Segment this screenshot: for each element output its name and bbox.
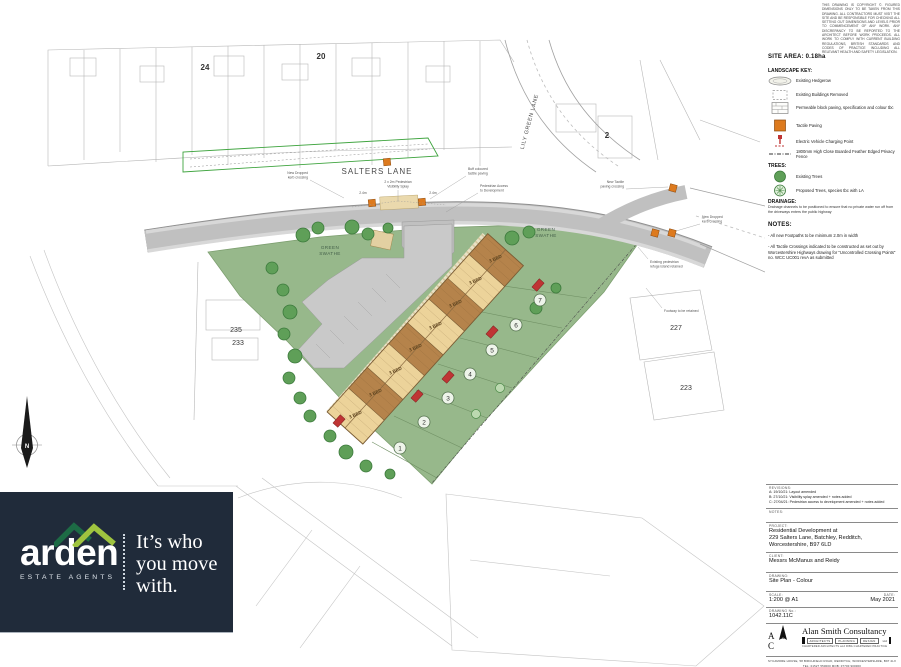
plot-number: 4 — [468, 372, 472, 379]
annotation: tactile paving — [468, 172, 488, 176]
stamp-bar — [802, 637, 805, 644]
plot-number: 7 — [538, 298, 542, 305]
client-section: CLIENT: Messrs McManus and Reidy — [766, 552, 898, 571]
firm-contact-block: SYCAMORE HOUSE, 58 BIRCHFIELD ROAD, REDD… — [766, 656, 898, 667]
discipline-label: ARCHITECTS — [807, 638, 834, 644]
house-number: 227 — [670, 325, 682, 332]
firm-suffix: Ltd — [883, 639, 887, 643]
drawing-title: Site Plan - Colour — [769, 578, 895, 585]
key-item-label: Existing Buildings Removed — [796, 92, 848, 97]
site-plan-page: 3 BED 3 BED 3 BED 3 BED 3 BED 3 BED 3 BE… — [0, 0, 901, 667]
annotation: New Dropped — [287, 171, 308, 175]
key-item-buildings-removed: Existing Buildings Removed — [768, 89, 899, 101]
site-area-label: SITE AREA: 0.18ha — [768, 54, 898, 60]
house-number: 24 — [201, 63, 210, 72]
arden-subtitle: ESTATE AGENTS — [20, 574, 120, 581]
annotation: New Dropped — [702, 215, 723, 219]
firm-phone: TEL: 01527 550000 MOB: 07700 900000 — [766, 664, 898, 667]
annotation: to Development — [480, 189, 504, 193]
plot-number: 2 — [422, 420, 426, 427]
annotation: kerb crossing — [702, 220, 722, 224]
key-item-existing-trees: Existing Trees — [768, 170, 899, 183]
consultancy-name: Alan Smith Consultancy — [802, 626, 896, 636]
tagline-line: with. — [136, 576, 217, 598]
tagline-line: you move — [136, 554, 217, 576]
date-value: May 2021 — [870, 597, 895, 604]
banner-divider — [123, 534, 125, 590]
discipline-label: PLANNING — [835, 638, 858, 644]
key-item-privacy-fence: 1800mm High Close Boarded Feather Edged … — [768, 149, 899, 160]
house-number: 233 — [232, 340, 244, 347]
hedgerow-icon — [768, 76, 792, 86]
arden-logo: arden ESTATE AGENTS — [20, 534, 120, 581]
notes-title: NOTES: — [768, 222, 898, 228]
annotation: 2.4m — [429, 191, 437, 195]
house-number: 223 — [680, 385, 692, 392]
key-item-label: Permeable block paving, specification an… — [796, 105, 894, 110]
drawing-no-section: DRAWING No.: 1042.11C — [766, 607, 898, 623]
note-item: - All Tactile Crossings indicated to be … — [768, 244, 898, 261]
removed-building-icon — [768, 89, 792, 101]
block-paving-icon — [768, 101, 792, 115]
neighbourhood-north — [48, 40, 514, 168]
key-item-permeable-paving: Permeable block paving, specification an… — [768, 101, 899, 115]
project-line: Worcestershire, B97 6LD — [769, 542, 895, 549]
revision-row: C: 27/04/21: Pedestrian access to develo… — [769, 500, 895, 505]
key-item-tactile-paving: Tactile Paving — [768, 119, 899, 132]
proposed-tree-icon — [768, 184, 792, 197]
plot-number: 3 — [446, 396, 450, 403]
plot-number: 5 — [490, 348, 494, 355]
annotation: 2 x 2m Pedestrian — [384, 180, 411, 184]
key-item-label: 1800mm High Close Boarded Feather Edged … — [796, 149, 899, 160]
key-item-proposed-trees: Proposed Trees, species tbc with LA — [768, 184, 899, 197]
key-item-label: Electric Vehicle Charging Point — [796, 139, 853, 144]
annotation: New Tactile — [607, 180, 624, 184]
tagline-line: It’s who — [136, 532, 217, 554]
annotation: 2.4m — [359, 191, 367, 195]
stamp-bar — [889, 637, 892, 644]
annotation: Pedestrian Access — [480, 184, 508, 188]
note-text: All new Footpaths to be minimum 2.0m in … — [770, 233, 858, 238]
project-section: PROJECT: Residential Development at 229 … — [766, 522, 898, 553]
neighbourhood-east — [556, 60, 760, 160]
discipline-label: DESIGN — [860, 638, 879, 644]
notes-section: NOTES: — [766, 508, 898, 522]
arden-banner: arden ESTATE AGENTS It’s who you move wi… — [0, 492, 233, 633]
project-line: 229 Salters Lane, Batchley, Redditch, — [769, 535, 895, 542]
ev-charger-icon — [768, 134, 792, 149]
north-label: N — [25, 444, 29, 450]
annotation: Visibility Splay — [387, 185, 409, 189]
green-swathe-label: GREEN — [537, 227, 555, 232]
note-item: - All new Footpaths to be minimum 2.0m i… — [768, 233, 898, 239]
house-number: 2 — [605, 131, 610, 140]
scale-date-section: SCALE: DATE: 1:200 @ A1 May 2021 — [766, 591, 898, 607]
street-label-salters-lane: SALTERS LANE — [342, 167, 413, 176]
asc-logo: A S C — [768, 626, 798, 652]
title-block: REVISIONS: A: 19/10/21: Layout amended B… — [765, 484, 899, 667]
annotation: Existing pedestrian — [650, 260, 679, 264]
key-item-ev-charging: Electric Vehicle Charging Point — [768, 134, 899, 149]
consultancy-disciplines: ARCHITECTS PLANNING DESIGN Ltd — [802, 637, 896, 644]
tb-notes-label: NOTES: — [769, 510, 895, 514]
key-item-label: Proposed Trees, species tbc with LA — [796, 188, 864, 193]
tactile-paving-icon — [768, 119, 792, 132]
annotation: paving crossing — [600, 185, 624, 189]
existing-tree-icon — [768, 170, 792, 183]
plot-number: 6 — [514, 323, 518, 330]
roof-chevrons-icon — [54, 521, 126, 547]
drawing-no-value: 1042.11C — [769, 613, 895, 620]
annotation: refuge island retained — [650, 265, 683, 269]
green-swathe-label: SWATHE — [535, 233, 557, 238]
key-item-label: Existing Trees — [796, 174, 822, 179]
green-swathe-label: SWATHE — [319, 251, 341, 256]
green-swathe-label: GREEN — [321, 245, 339, 250]
revisions-section: REVISIONS: A: 19/10/21: Layout amended B… — [766, 484, 898, 508]
house-number: 20 — [317, 52, 326, 61]
annotation: Buff coloured — [468, 167, 488, 171]
annotation: kerb crossing — [288, 176, 308, 180]
arden-tagline: It’s who you move with. — [136, 532, 217, 598]
house-number: 235 — [230, 327, 242, 334]
client-name: Messrs McManus and Reidy — [769, 558, 895, 565]
key-item-label: Existing Hedgerow — [796, 78, 831, 83]
drawing-section: DRAWING: Site Plan - Colour — [766, 572, 898, 591]
firm-registration: CHARTERED ARCHITECTS and RIBA CHARTERED … — [802, 645, 896, 648]
note-text: All Tactile Crossings indicated to be co… — [768, 244, 895, 260]
project-line: Residential Development at — [769, 528, 895, 535]
copyright-note: THIS DRAWING IS COPYRIGHT ©. FIGURED DIM… — [822, 3, 900, 54]
asc-initials: A S C — [768, 631, 798, 651]
drainage-note: Drainage channels to be positioned to en… — [768, 205, 898, 214]
fence-line-icon — [768, 151, 792, 157]
scale-value: 1:200 @ A1 — [769, 597, 798, 604]
plot-number: 1 — [398, 446, 402, 453]
key-item-label: Tactile Paving — [796, 123, 822, 128]
consultancy-stamp: A S C Alan Smith Consultancy ARCHITECTS … — [766, 623, 898, 653]
landscape-key-title: LANDSCAPE KEY: — [768, 68, 898, 74]
annotation: Footway to be retained — [664, 309, 699, 313]
firm-address: SYCAMORE HOUSE, 58 BIRCHFIELD ROAD, REDD… — [766, 659, 898, 663]
key-item-existing-hedgerow: Existing Hedgerow — [768, 76, 899, 86]
trees-title: TREES: — [768, 163, 898, 169]
north-arrow: N — [12, 396, 42, 468]
